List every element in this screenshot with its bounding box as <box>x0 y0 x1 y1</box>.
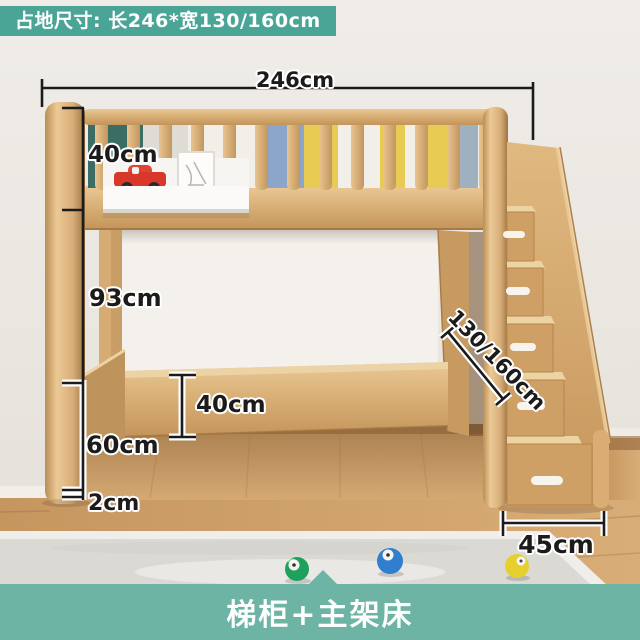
right-post <box>483 107 508 508</box>
product-name-label: 梯柜+主架床 <box>226 590 413 634</box>
dim-label-leg-clearance: 60cm <box>86 431 159 459</box>
dim-label-clearance-height: 93cm <box>89 284 162 312</box>
footprint-size-badge: 占地尺寸: 长246*宽130/160cm <box>0 6 336 36</box>
product-image: 占地尺寸: 长246*宽130/160cm 246cm 40cm 93cm 60… <box>0 0 640 640</box>
banner-notch <box>308 570 338 585</box>
drawer-handle <box>510 343 536 351</box>
dim-label-floor-gap: 2cm <box>88 491 139 516</box>
drawer-handle <box>503 231 525 238</box>
dim-label-guardrail-height: 40cm <box>88 142 158 168</box>
dim-label-stair-depth: 45cm <box>518 530 594 559</box>
dim-label-total-length: 246cm <box>256 68 334 92</box>
lower-bed-rail <box>86 362 448 438</box>
drawer-handle <box>506 287 530 295</box>
drawer-handle <box>531 476 563 485</box>
dim-label-side-rail-height: 40cm <box>196 392 266 418</box>
left-post <box>45 102 85 504</box>
product-name-banner: 梯柜+主架床 <box>0 584 640 640</box>
